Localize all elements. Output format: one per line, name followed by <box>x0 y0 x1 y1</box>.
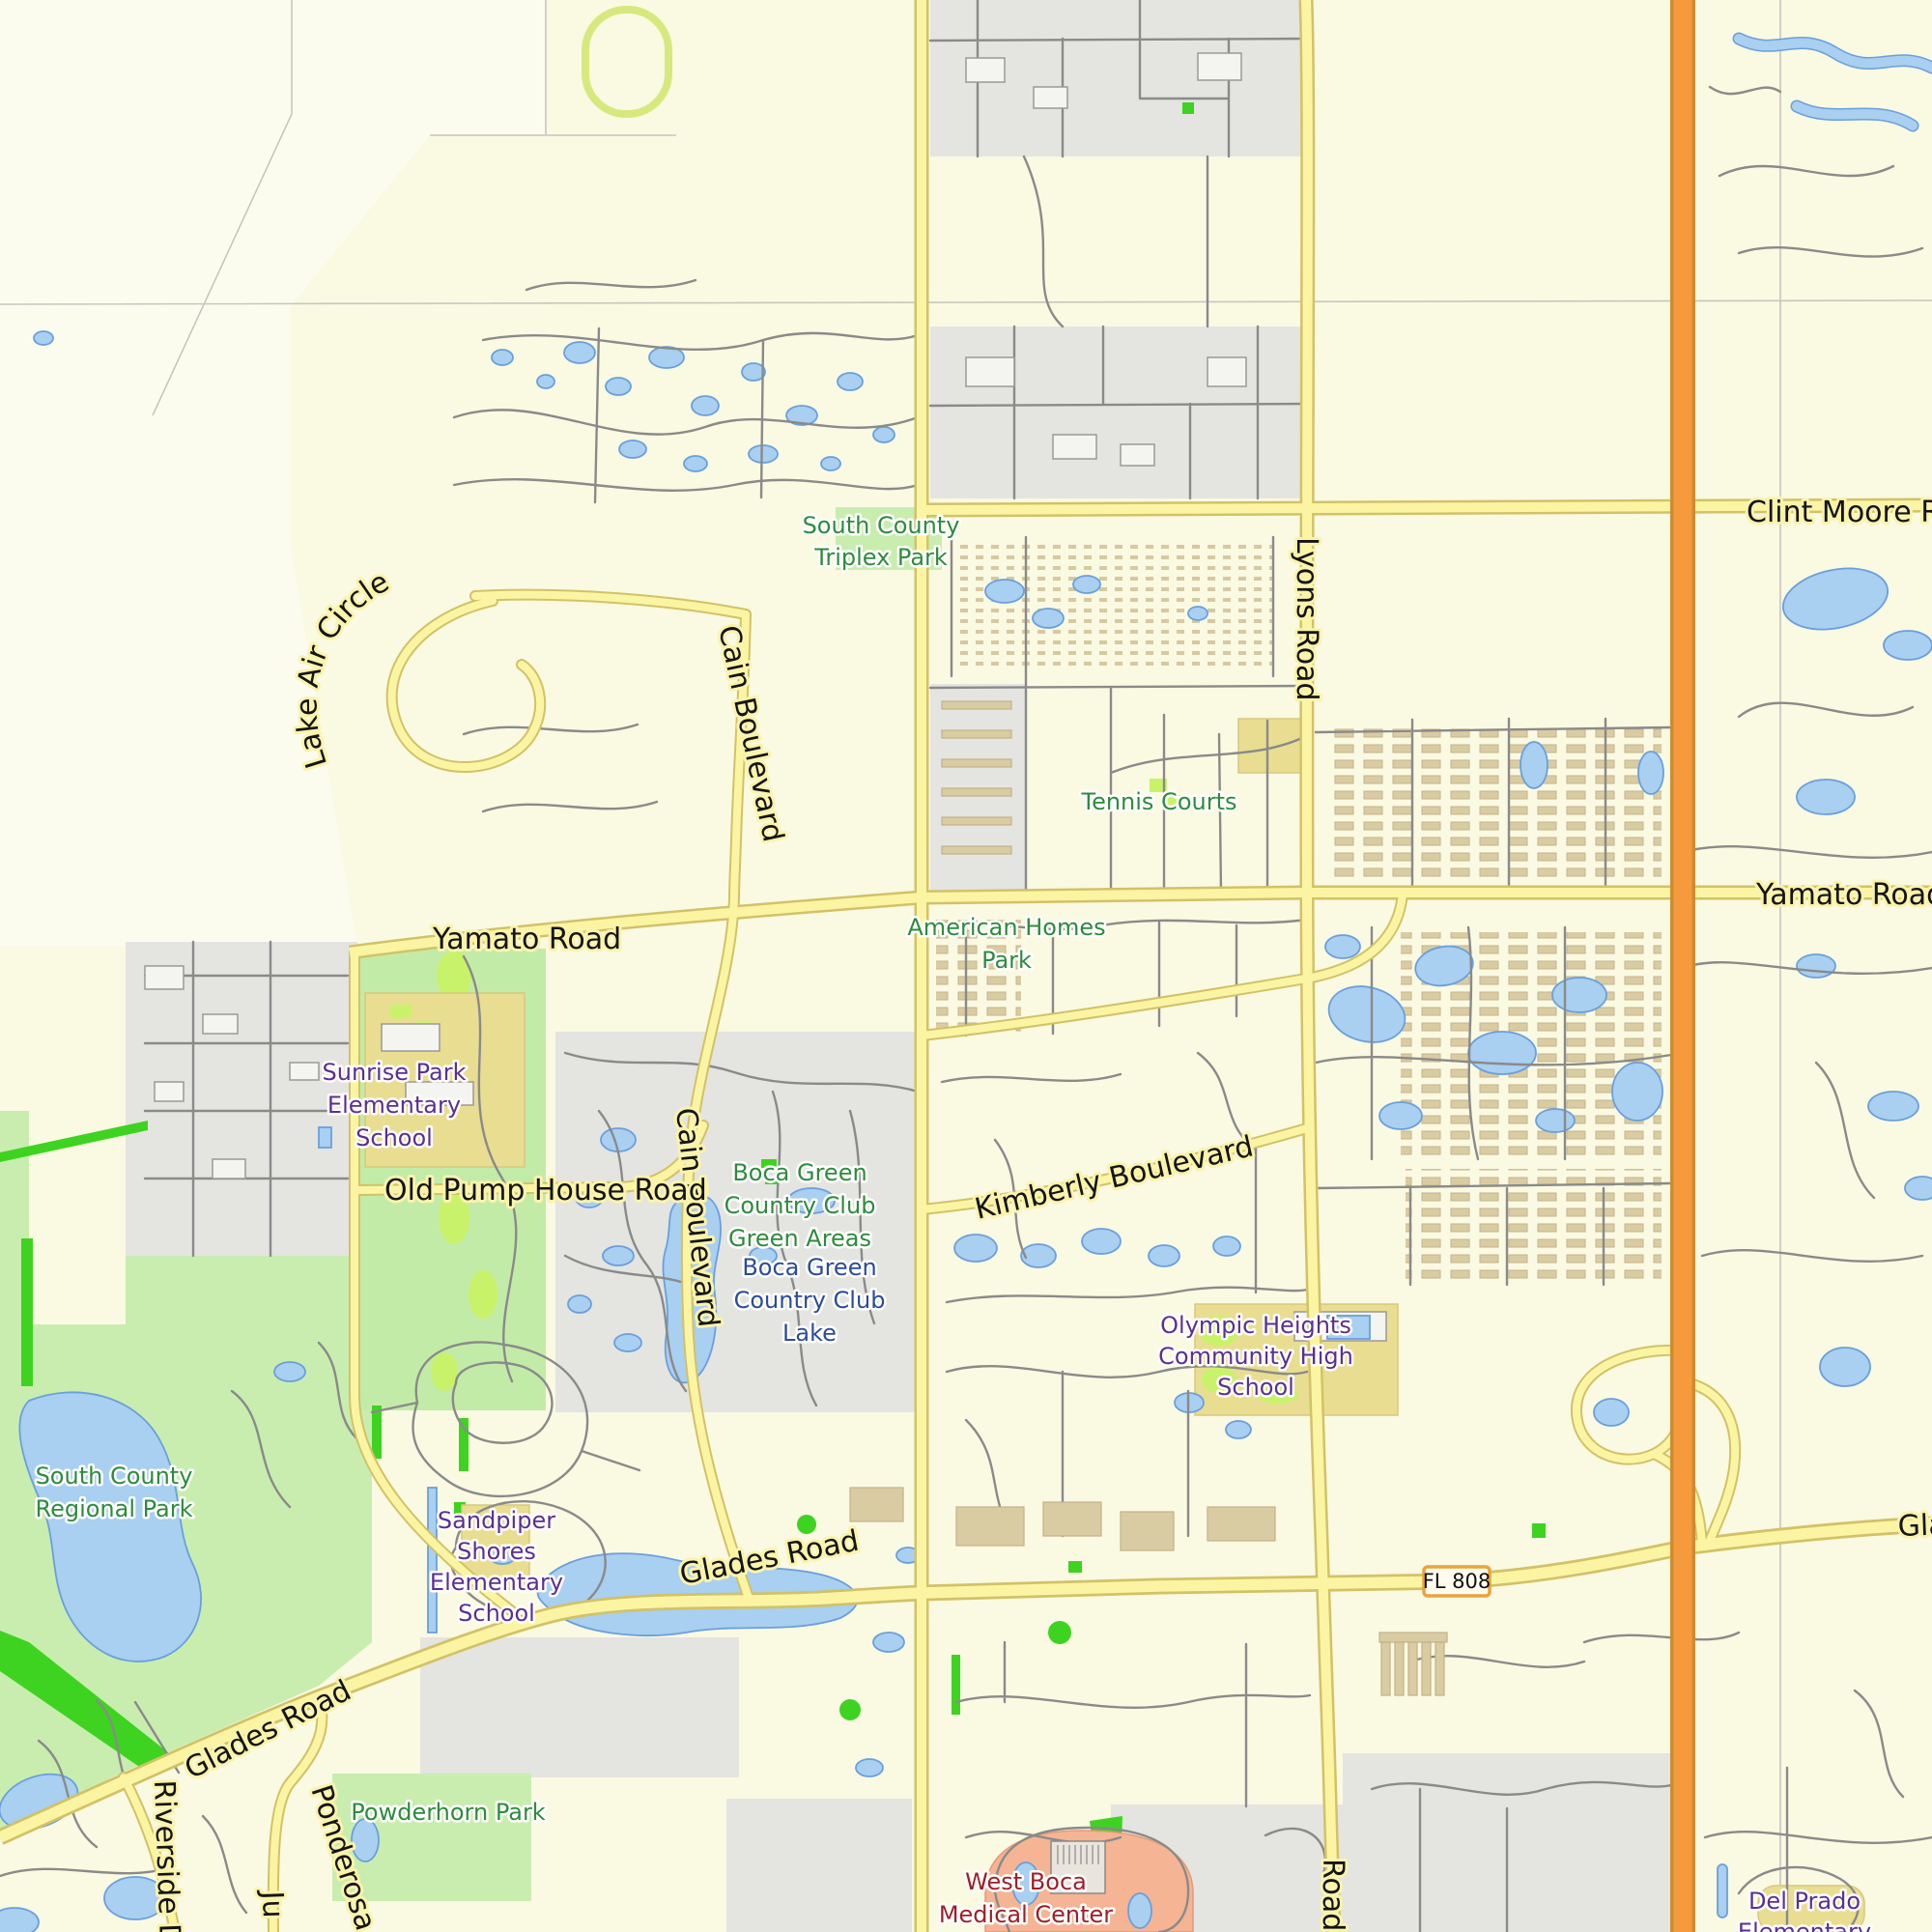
label-regional-park-1: South County <box>36 1463 193 1490</box>
label-sunrise-park-2: Elementary <box>327 1092 461 1119</box>
label-yamato-road-west: Yamato Road <box>432 923 621 956</box>
label-west-boca-medical-1: West Boca <box>965 1868 1087 1895</box>
label-american-homes-2: Park <box>981 947 1032 974</box>
label-boca-green-lake-3: Lake <box>782 1320 837 1347</box>
label-sandpiper-4: School <box>458 1600 535 1627</box>
label-olympic-heights-3: School <box>1217 1374 1294 1401</box>
label-sandpiper-1: Sandpiper <box>438 1507 555 1534</box>
label-sandpiper-3: Elementary <box>430 1569 563 1596</box>
label-sandpiper-2: Shores <box>457 1538 536 1565</box>
label-triplex-park-2: Triplex Park <box>813 544 948 571</box>
route-shield-label: FL 808 <box>1423 1570 1492 1593</box>
label-lyons-road-south: Road <box>1316 1859 1350 1931</box>
label-west-boca-medical-2: Medical Center <box>939 1901 1113 1928</box>
label-boca-green-areas-2: Country Club <box>724 1192 876 1219</box>
route-shield-fl808: FL 808 <box>1423 1567 1492 1596</box>
label-boca-green-areas-1: Boca Green <box>732 1159 867 1186</box>
label-glades-road-east: Glades Road <box>1897 1503 1932 1544</box>
label-del-prado-1: Del Prado <box>1748 1888 1861 1915</box>
label-american-homes-1: American Homes <box>907 914 1105 941</box>
label-lyons-road: Lyons Road <box>1290 537 1323 701</box>
label-old-pump-house-road: Old Pump House Road <box>384 1174 707 1207</box>
label-clint-moore-road: Clint Moore Road <box>1747 496 1932 529</box>
label-sunrise-park-3: School <box>355 1124 433 1151</box>
label-boca-green-areas-3: Green Areas <box>728 1225 871 1252</box>
label-yamato-road-east: Yamato Road <box>1755 878 1932 912</box>
label-del-prado-2: Elementary <box>1738 1918 1871 1932</box>
label-olympic-heights-1: Olympic Heights <box>1160 1312 1351 1339</box>
label-boca-green-lake-2: Country Club <box>734 1287 886 1314</box>
label-ju-road: Ju <box>255 1889 290 1918</box>
map-canvas[interactable]: FL 808 Clint Moore Road Lyons Road Lake … <box>0 0 1932 1932</box>
label-olympic-heights-2: Community High <box>1158 1343 1353 1370</box>
label-boca-green-lake-1: Boca Green <box>742 1254 876 1281</box>
label-tennis-courts: Tennis Courts <box>1080 788 1236 815</box>
label-sunrise-park-1: Sunrise Park <box>323 1059 467 1086</box>
label-powderhorn-park: Powderhorn Park <box>351 1799 546 1826</box>
label-riverside-drive: Riverside Drive <box>147 1779 188 1932</box>
label-triplex-park-1: South County <box>803 512 960 539</box>
label-regional-park-2: Regional Park <box>35 1495 192 1522</box>
